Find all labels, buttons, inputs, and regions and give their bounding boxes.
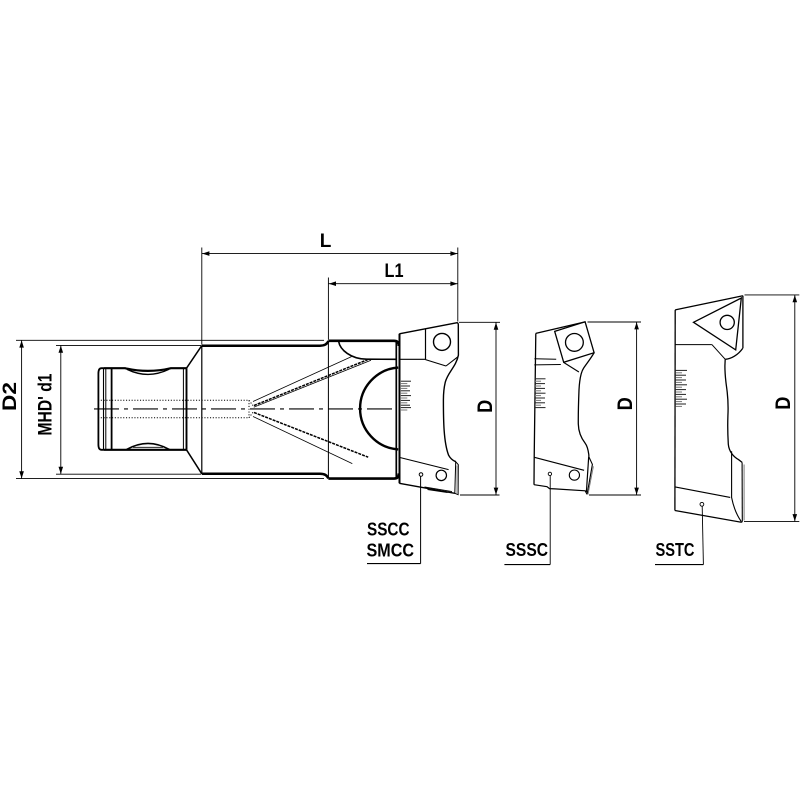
- svg-text:SSTC: SSTC: [656, 539, 695, 560]
- svg-text:SSSC: SSSC: [506, 539, 549, 560]
- svg-text:SSCC: SSCC: [367, 518, 410, 539]
- svg-text:MHD' d1: MHD' d1: [36, 373, 57, 435]
- svg-text:L1: L1: [385, 261, 404, 282]
- svg-text:D: D: [614, 397, 637, 410]
- svg-text:D2: D2: [0, 382, 21, 411]
- svg-text:L: L: [320, 231, 332, 252]
- svg-text:D: D: [772, 397, 795, 410]
- svg-text:SMCC: SMCC: [367, 539, 415, 560]
- svg-text:D: D: [474, 400, 497, 413]
